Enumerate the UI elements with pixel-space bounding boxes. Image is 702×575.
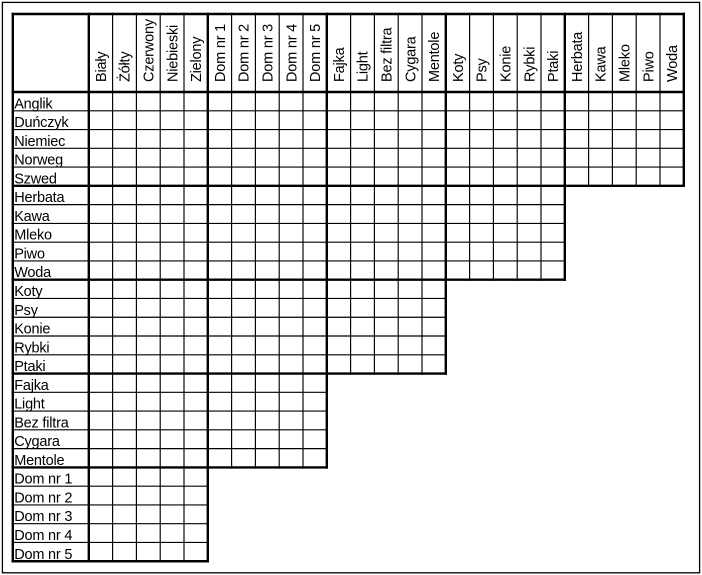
svg-text:Cygara: Cygara xyxy=(14,434,61,450)
svg-text:Ptaki: Ptaki xyxy=(14,359,45,375)
svg-text:Dom nr 5: Dom nr 5 xyxy=(14,547,72,563)
svg-text:Rybki: Rybki xyxy=(522,47,538,82)
svg-text:Anglik: Anglik xyxy=(14,96,53,112)
svg-text:Żółty: Żółty xyxy=(116,51,134,82)
svg-text:Rybki: Rybki xyxy=(14,340,49,356)
svg-text:Dom nr 1: Dom nr 1 xyxy=(213,24,229,82)
svg-text:Light: Light xyxy=(356,51,372,82)
svg-text:Koty: Koty xyxy=(451,53,467,82)
svg-text:Bez filtra: Bez filtra xyxy=(380,26,396,82)
svg-text:Psy: Psy xyxy=(475,57,491,82)
svg-text:Dom nr 4: Dom nr 4 xyxy=(14,528,72,544)
svg-text:Kawa: Kawa xyxy=(14,209,51,225)
svg-text:Kawa: Kawa xyxy=(594,45,610,82)
svg-text:Szwed: Szwed xyxy=(14,171,57,187)
svg-text:Dom nr 4: Dom nr 4 xyxy=(284,24,300,82)
svg-text:Fajka: Fajka xyxy=(14,378,50,394)
svg-text:Piwo: Piwo xyxy=(14,246,45,262)
svg-text:Niemiec: Niemiec xyxy=(14,134,65,150)
svg-text:Fajka: Fajka xyxy=(332,46,348,82)
svg-text:Mentole: Mentole xyxy=(14,453,64,469)
svg-text:Koty: Koty xyxy=(14,284,43,300)
svg-text:Dom nr 1: Dom nr 1 xyxy=(14,472,72,488)
svg-text:Norweg: Norweg xyxy=(14,153,63,169)
svg-text:Mentole: Mentole xyxy=(427,32,443,82)
svg-text:Mleko: Mleko xyxy=(618,44,634,82)
svg-text:Biały: Biały xyxy=(94,51,110,82)
svg-text:Niebieski: Niebieski xyxy=(165,25,181,82)
svg-text:Mleko: Mleko xyxy=(14,228,52,244)
svg-text:Dom nr 3: Dom nr 3 xyxy=(14,509,72,525)
svg-text:Konie: Konie xyxy=(14,322,50,338)
svg-text:Herbata: Herbata xyxy=(570,31,586,82)
svg-text:Woda: Woda xyxy=(14,265,52,281)
svg-text:Ptaki: Ptaki xyxy=(546,51,562,82)
svg-text:Czerwony: Czerwony xyxy=(142,18,158,82)
svg-text:Woda: Woda xyxy=(665,44,681,82)
svg-text:Bez filtra: Bez filtra xyxy=(14,415,70,431)
svg-text:Duńczyk: Duńczyk xyxy=(14,115,69,131)
svg-text:Dom nr 2: Dom nr 2 xyxy=(14,490,72,506)
svg-text:Herbata: Herbata xyxy=(14,190,65,206)
svg-text:Konie: Konie xyxy=(499,46,515,82)
svg-text:Psy: Psy xyxy=(14,303,39,319)
svg-text:Dom nr 5: Dom nr 5 xyxy=(308,24,324,82)
svg-text:Dom nr 3: Dom nr 3 xyxy=(261,24,277,82)
svg-text:Zielony: Zielony xyxy=(189,36,205,82)
svg-text:Dom nr 2: Dom nr 2 xyxy=(237,24,253,82)
svg-text:Light: Light xyxy=(14,397,45,413)
svg-text:Piwo: Piwo xyxy=(641,51,657,82)
svg-text:Cygara: Cygara xyxy=(403,35,419,82)
